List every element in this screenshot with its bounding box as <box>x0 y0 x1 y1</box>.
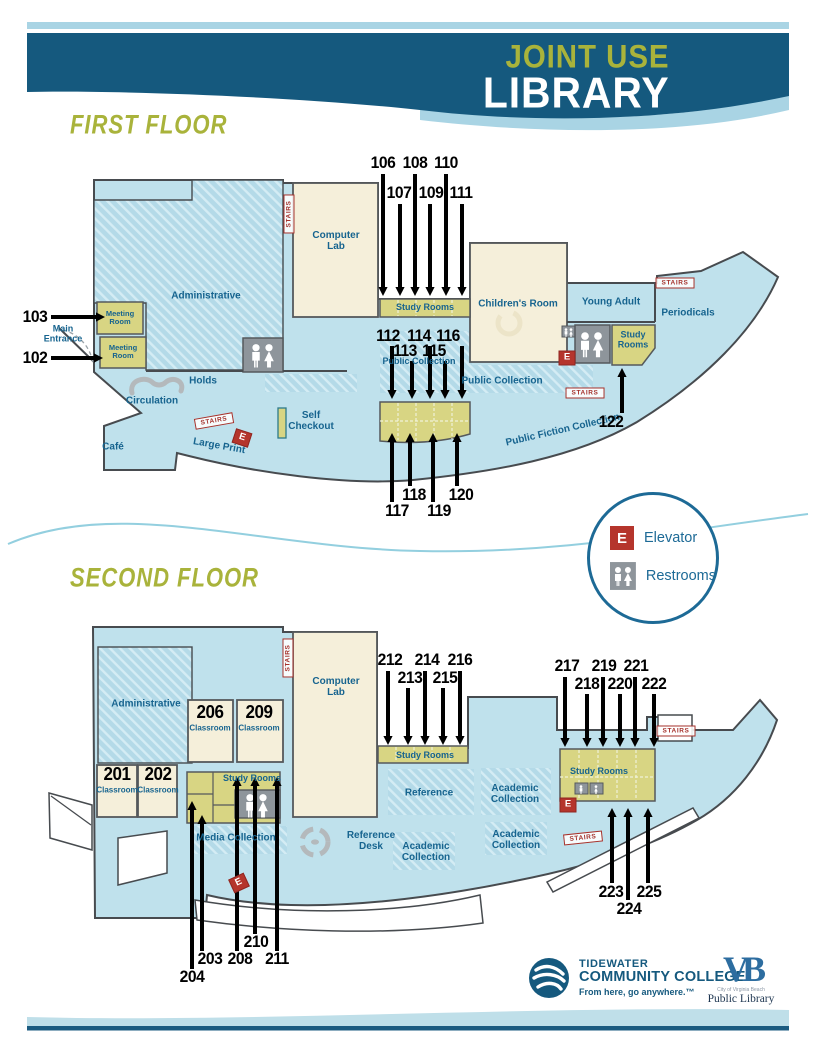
self-checkout-kiosk <box>278 408 286 438</box>
room-label: Café <box>102 443 124 454</box>
number-label: 119 <box>427 502 451 520</box>
number-label: 117 <box>385 502 409 520</box>
number-label: 214 <box>415 651 440 669</box>
room-label: Media Collection <box>196 834 275 845</box>
number-label: 110 <box>434 154 458 172</box>
holds-area <box>265 374 357 392</box>
number-label: 107 <box>387 184 412 202</box>
vb-library-name: Public Library <box>703 994 779 1006</box>
page-title-line2: LIBRARY <box>483 72 670 115</box>
elevator-label: Elevator <box>644 530 697 546</box>
room-label: Study Rooms <box>223 774 281 784</box>
header-wave <box>27 33 789 118</box>
number-label: 120 <box>449 486 474 504</box>
second-floor-map: Administrative206Classroom209Classroom20… <box>15 555 801 985</box>
header-stripe <box>27 22 789 29</box>
stairs-badge: STAIRS <box>566 387 605 398</box>
stairs-badge: STAIRS <box>656 277 695 288</box>
room-label: Circulation <box>126 397 178 408</box>
restrooms-block-right <box>575 325 610 363</box>
room-label: Study Rooms <box>612 330 654 349</box>
number-label: 212 <box>378 651 403 669</box>
room-label: Public Collection <box>461 377 542 388</box>
room-label: Reference <box>405 789 453 800</box>
number-label: 222 <box>642 675 667 693</box>
number-label: 109 <box>419 184 444 202</box>
number-label: 217 <box>555 657 580 675</box>
number-label: 216 <box>448 651 473 669</box>
restrooms-label: Restrooms <box>646 568 716 584</box>
room-label: Young Adult <box>582 298 640 309</box>
number-label: 219 <box>592 657 617 675</box>
elevator-badge: E <box>560 798 577 813</box>
room-label: Administrative <box>111 700 180 711</box>
computer-lab-room <box>293 632 377 817</box>
room-label: Self Checkout <box>287 411 335 433</box>
room-label: Classroom <box>96 787 137 796</box>
page-title: JOINT USE LIBRARY <box>473 42 670 115</box>
number-label: 202 <box>144 764 171 784</box>
room-label: Computer Lab <box>307 231 365 253</box>
number-label: 215 <box>433 669 458 687</box>
number-label: 206 <box>196 702 223 722</box>
room-label: Classroom <box>137 787 178 796</box>
footer-band <box>0 1000 816 1056</box>
tcc-wave-icon <box>527 956 571 1000</box>
legend: E Elevator Restrooms <box>587 492 719 624</box>
legend-restrooms-row: Restrooms <box>610 562 716 590</box>
room-label: Holds <box>189 377 217 388</box>
number-label: 208 <box>228 950 253 968</box>
room-label: Reference Desk <box>341 831 401 853</box>
restrooms-block-center <box>243 338 283 372</box>
number-label: 111 <box>450 184 473 202</box>
second-floor-plan <box>15 555 801 985</box>
stairs-badge: STAIRS <box>657 725 696 736</box>
number-label: 203 <box>198 950 223 968</box>
room-label: Classroom <box>238 725 279 734</box>
room-label: Classroom <box>189 725 230 734</box>
library-map-page: JOINT USE LIBRARY FIRST FLOOR SECOND FLO… <box>0 0 816 1056</box>
second-floor-title: SECOND FLOOR <box>70 563 259 594</box>
number-label: 211 <box>265 950 289 968</box>
number-label: 213 <box>398 669 423 687</box>
room-label: Academic Collection <box>484 830 548 852</box>
number-label: 106 <box>371 154 396 172</box>
reference-desk-dot <box>311 839 319 844</box>
restrooms-block-small <box>562 326 575 337</box>
number-label: 115 <box>422 342 446 360</box>
room-label: Academic Collection <box>394 842 458 864</box>
restrooms-block-left <box>235 790 280 818</box>
number-label: 224 <box>617 900 642 918</box>
number-label: 103 <box>23 308 48 326</box>
room-label: Children's Room <box>478 300 558 311</box>
room-label: Meeting Room <box>105 344 141 360</box>
number-label: 122 <box>599 413 624 431</box>
restrooms-icon <box>610 562 636 590</box>
room-label: Periodicals <box>661 309 714 320</box>
stairs-badge: STAIRS <box>283 195 294 234</box>
room-label: Study Rooms <box>396 751 454 761</box>
number-label: 118 <box>402 486 426 504</box>
number-label: 102 <box>23 349 48 367</box>
number-label: 209 <box>245 702 272 722</box>
vb-monogram: VB <box>703 951 779 987</box>
first-floor-map: AdministrativeMeeting RoomMeeting RoomCo… <box>15 150 801 540</box>
elevator-icon: E <box>610 526 634 550</box>
vb-library-logo: VB City of Virginia Beach Public Library <box>703 951 779 1006</box>
legend-elevator-row: E Elevator <box>610 526 716 550</box>
number-label: 221 <box>624 657 649 675</box>
room-label: Study Rooms <box>570 767 628 777</box>
stairs-badge: STAIRS <box>282 639 293 678</box>
room-label: Main Entrance <box>38 324 88 343</box>
room-label: Computer Lab <box>307 677 365 699</box>
first-floor-title: FIRST FLOOR <box>70 110 227 141</box>
room-label: Study Rooms <box>396 303 454 313</box>
room-label: Academic Collection <box>483 784 547 806</box>
room-label: Administrative <box>171 292 240 303</box>
number-label: 201 <box>103 764 130 784</box>
number-label: 108 <box>403 154 428 172</box>
room-label: Meeting Room <box>102 310 138 326</box>
number-label: 218 <box>575 675 600 693</box>
number-label: 113 <box>393 342 417 360</box>
number-label: 204 <box>180 968 205 986</box>
elevator-badge: E <box>559 351 576 366</box>
number-label: 220 <box>608 675 633 693</box>
